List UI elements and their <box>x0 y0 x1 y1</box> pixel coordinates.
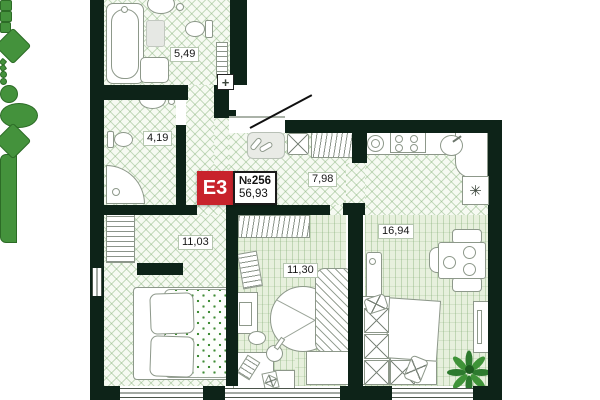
coat-rack <box>311 129 353 158</box>
wall-bedrooms-divider <box>226 205 238 386</box>
plant-pot-icon <box>0 78 7 85</box>
wall-hall-south <box>230 205 330 215</box>
sofa-cushion <box>364 334 389 359</box>
floor-plan: + ✳ 5,49 4,19 7,98 11,03 11,30 16,94 E3 … <box>0 0 600 400</box>
cutlery-icon <box>0 64 7 72</box>
wardrobe-left <box>106 213 135 263</box>
ottoman-box <box>306 351 354 385</box>
room-area-label: 16,94 <box>378 224 414 239</box>
monitor-icon <box>239 302 252 326</box>
wall-living-divider-top <box>343 203 365 215</box>
ottoman-cushion <box>0 103 38 128</box>
dryer-icon <box>0 11 12 22</box>
dining-chair <box>452 277 482 292</box>
window <box>120 388 203 398</box>
entry-stool <box>287 133 309 155</box>
unit-total-area: 56,93 <box>239 188 275 201</box>
unit-type-badge: E3 <box>197 171 233 205</box>
toilet-top-bowl <box>185 21 205 37</box>
room-area-label: 4,19 <box>143 131 172 146</box>
entrance-threshold <box>229 116 285 118</box>
bathtub-drain-icon <box>121 6 128 13</box>
electrical-panel-icon: + <box>217 74 234 90</box>
wall-bath-small-right <box>176 85 186 95</box>
wall-hall-south <box>104 205 197 215</box>
wall-bottom <box>340 386 392 400</box>
plate-icon <box>463 246 476 259</box>
wall-bedroom-stub <box>137 263 183 275</box>
hood-fan-inner-icon <box>371 139 380 148</box>
bathtub-inner <box>111 9 139 79</box>
washer-icon <box>0 0 12 11</box>
wall-hall-kitchen-divider <box>352 120 367 163</box>
wall-living-divider <box>348 215 363 386</box>
unit-info-badge: №256 56,93 <box>233 171 277 205</box>
room-area-label: 5,49 <box>170 47 199 62</box>
wall-bath-top-bottom <box>90 85 188 100</box>
bed-headboard <box>0 154 17 243</box>
cabinet-handle-icon <box>369 258 376 265</box>
window <box>225 388 340 398</box>
burner-icon <box>410 144 418 152</box>
tv-screen <box>477 310 482 344</box>
pouf <box>0 85 18 103</box>
sofa-chaise <box>385 297 441 361</box>
burner-icon <box>410 135 418 143</box>
floor-hall-kitchen-gap <box>346 163 367 205</box>
wall-bottom <box>203 386 225 400</box>
shower-drain-icon <box>112 188 120 196</box>
sofa-cushion <box>364 360 389 385</box>
burner-icon <box>395 144 403 152</box>
plate-icon <box>463 263 476 276</box>
window <box>392 388 473 398</box>
plant-icon <box>447 347 491 391</box>
bath-rug <box>146 20 165 47</box>
toilet-small-tank <box>107 131 114 148</box>
room-area-label: 11,03 <box>178 235 213 250</box>
wall-right <box>488 120 502 400</box>
toilet-top-tank <box>205 20 213 38</box>
ventilation-icon: ✳ <box>462 176 489 205</box>
toilet-small-bowl <box>114 132 133 147</box>
towel-radiator <box>216 42 228 78</box>
wall-bath-top-right <box>230 0 247 85</box>
window <box>92 268 102 296</box>
room-area-label: 11,30 <box>283 263 318 278</box>
wall-left <box>90 0 104 400</box>
bed-pillow <box>149 335 194 378</box>
faucet-knob-icon <box>176 3 184 11</box>
desk-chair <box>248 331 266 345</box>
bath-cabinet <box>140 57 169 83</box>
wall-kitchen-top <box>285 120 488 133</box>
plate-icon <box>443 256 456 269</box>
room-area-label: 7,98 <box>308 172 337 187</box>
wall-bottom <box>90 386 120 400</box>
plant-pot-icon <box>0 71 7 78</box>
bed-pillow <box>149 292 194 335</box>
wall-bath-small-right <box>176 125 186 215</box>
wardrobe-middle <box>238 215 310 238</box>
burner-icon <box>395 135 403 143</box>
unit-number: №256 <box>239 175 275 188</box>
